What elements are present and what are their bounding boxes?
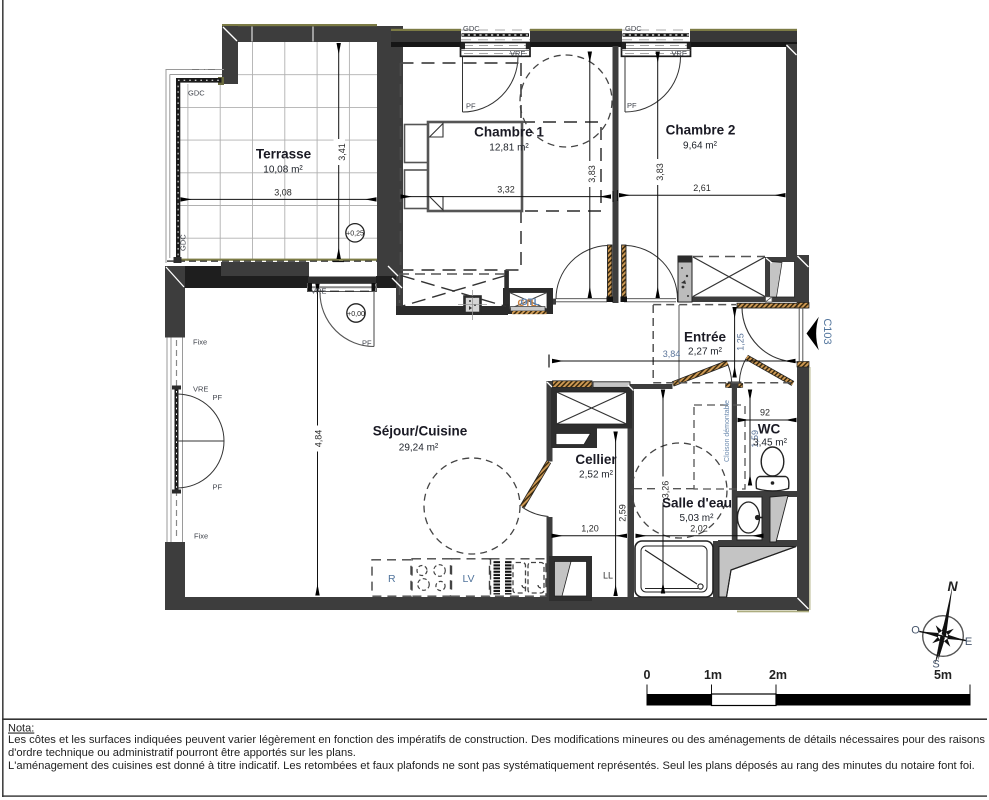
svg-text:2,61: 2,61: [693, 183, 711, 193]
svg-text:GDC: GDC: [625, 24, 642, 33]
svg-text:PF: PF: [362, 339, 372, 348]
svg-text:WC: WC: [758, 422, 781, 437]
svg-text:29,24 m²: 29,24 m²: [399, 443, 439, 454]
svg-text:1,20: 1,20: [581, 523, 599, 533]
svg-text:3,45 m²: 3,45 m²: [753, 438, 788, 449]
svg-text:E: E: [965, 636, 972, 648]
svg-text:GDC: GDC: [188, 89, 205, 98]
svg-text:Les côtes et les surfaces indi: Les côtes et les surfaces indiquées peuv…: [8, 734, 985, 746]
svg-text:PF: PF: [213, 483, 223, 492]
svg-text:3,83: 3,83: [655, 163, 665, 181]
svg-text:2,02: 2,02: [690, 523, 708, 533]
svg-text:5,03 m²: 5,03 m²: [680, 513, 715, 524]
svg-text:PF: PF: [213, 393, 223, 402]
svg-text:Séjour/Cuisine: Séjour/Cuisine: [373, 424, 468, 439]
svg-text:VRE: VRE: [193, 385, 208, 394]
svg-text:R: R: [388, 573, 396, 585]
svg-text:+0,00: +0,00: [347, 311, 365, 318]
svg-text:Entrée: Entrée: [684, 330, 727, 345]
svg-text:PF: PF: [466, 102, 476, 111]
svg-text:GDC: GDC: [463, 24, 480, 33]
svg-text:0: 0: [644, 668, 651, 682]
svg-text:3,08: 3,08: [274, 188, 292, 198]
svg-text:12,81 m²: 12,81 m²: [489, 143, 529, 154]
svg-text:5m: 5m: [934, 668, 952, 682]
svg-text:Fixe: Fixe: [193, 338, 207, 347]
svg-text:d'ordre technique ou administr: d'ordre technique ou administratif pourr…: [8, 747, 356, 759]
svg-text:OTL: OTL: [521, 297, 540, 308]
svg-text:Fixe: Fixe: [194, 532, 208, 541]
svg-text:Cloison démontable: Cloison démontable: [724, 400, 731, 462]
svg-text:4,84: 4,84: [314, 430, 324, 448]
svg-text:VRE: VRE: [510, 49, 525, 58]
svg-text:GDC: GDC: [179, 234, 188, 251]
svg-text:+0,25: +0,25: [346, 231, 364, 238]
svg-text:2m: 2m: [769, 668, 787, 682]
svg-text:3,83: 3,83: [587, 165, 597, 183]
svg-text:O: O: [911, 625, 920, 637]
svg-text:1m: 1m: [704, 668, 722, 682]
svg-text:10,08 m²: 10,08 m²: [263, 165, 303, 176]
svg-text:Salle d'eau: Salle d'eau: [662, 496, 732, 511]
svg-text:3,32: 3,32: [497, 185, 515, 195]
svg-text:2,52 m²: 2,52 m²: [579, 470, 614, 481]
svg-text:2,59: 2,59: [618, 504, 628, 522]
svg-text:C103: C103: [821, 318, 833, 344]
svg-text:Cellier: Cellier: [575, 452, 617, 467]
svg-text:92: 92: [760, 408, 770, 418]
svg-text:L'aménagement des cuisines est: L'aménagement des cuisines est donné à t…: [8, 760, 975, 772]
svg-text:2,27 m²: 2,27 m²: [688, 347, 723, 358]
svg-text:PF: PF: [627, 101, 637, 110]
svg-text:3,41: 3,41: [337, 143, 347, 161]
svg-text:N: N: [948, 578, 959, 594]
svg-text:1,25: 1,25: [736, 333, 746, 351]
svg-text:VRE: VRE: [311, 287, 326, 296]
svg-text:LL: LL: [603, 571, 613, 581]
svg-text:LV: LV: [463, 573, 475, 585]
svg-text:Terrasse: Terrasse: [256, 147, 312, 162]
svg-text:Chambre 1: Chambre 1: [474, 125, 544, 140]
svg-text:VRE: VRE: [672, 49, 687, 58]
svg-text:9,64 m²: 9,64 m²: [683, 141, 718, 152]
svg-text:3,84: 3,84: [663, 349, 681, 359]
svg-text:Nota:: Nota:: [8, 723, 34, 735]
svg-text:Chambre 2: Chambre 2: [666, 123, 736, 138]
